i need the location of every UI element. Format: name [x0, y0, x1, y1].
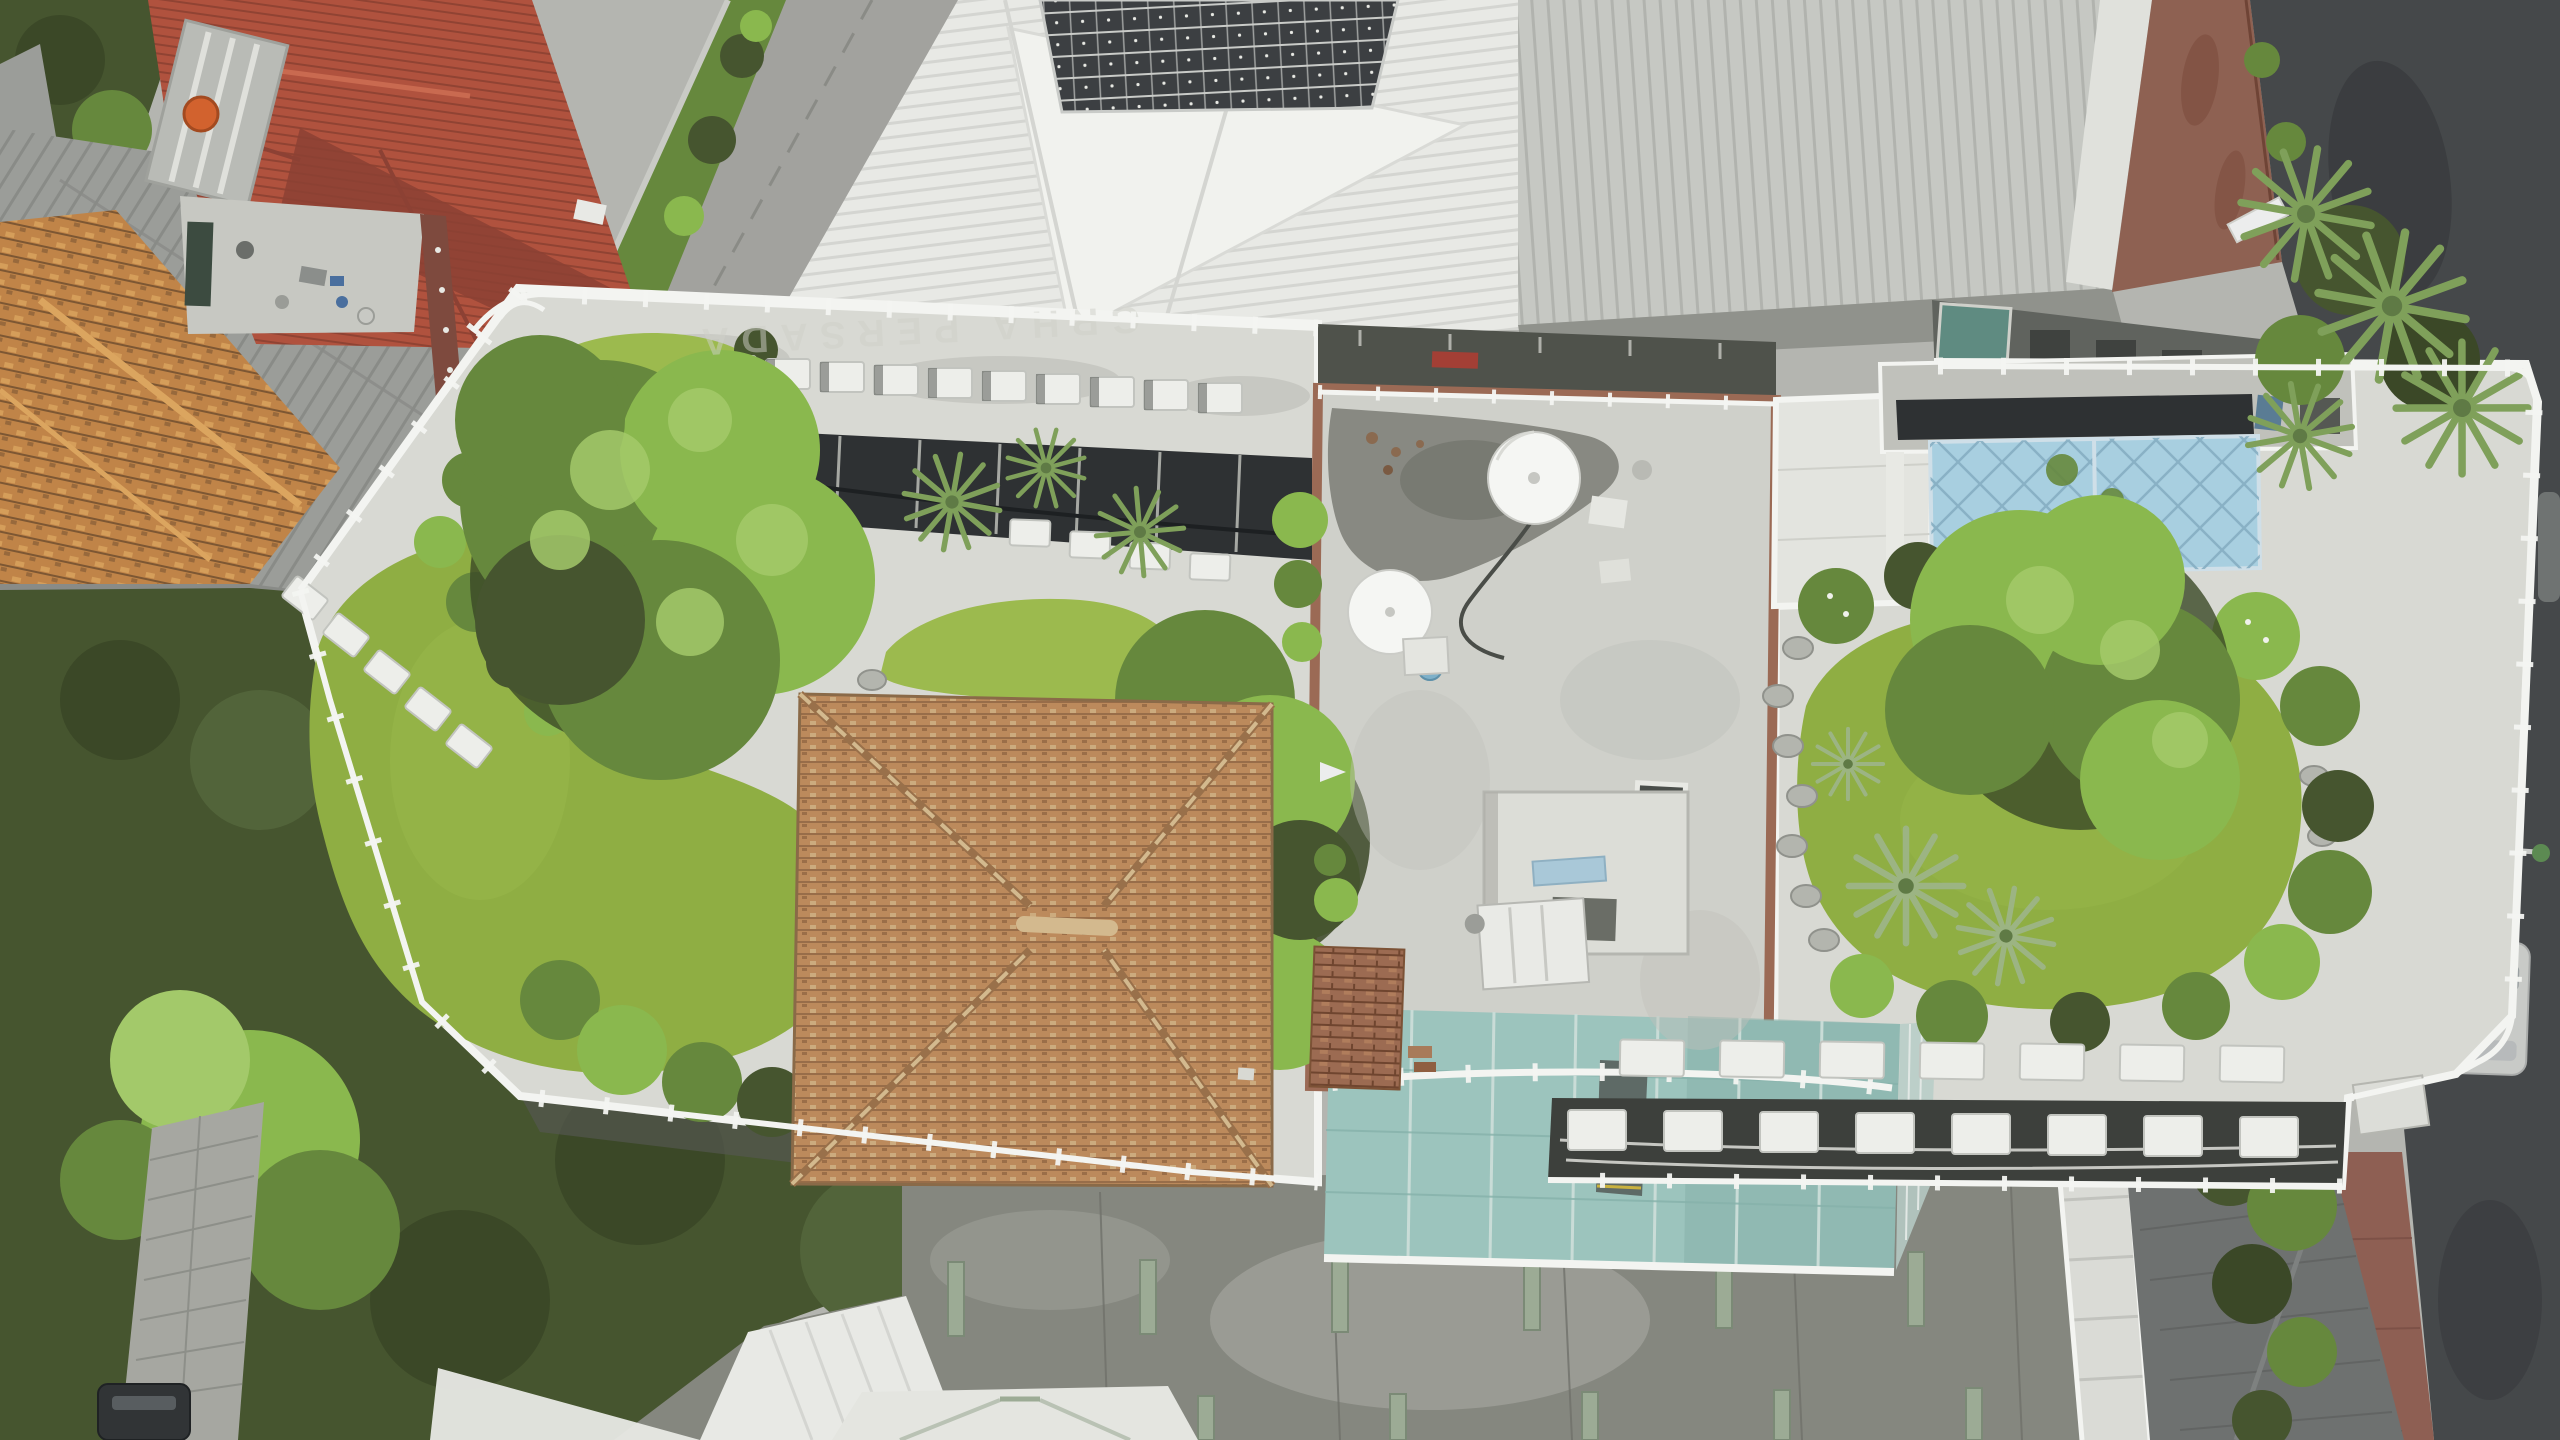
aerial-photo-stage: GRHA PERSADA — [0, 0, 2560, 1440]
solar-panel-array — [1040, 0, 1398, 112]
rust-walkway — [2066, 0, 2282, 292]
satellite-dish-large — [1488, 432, 1580, 524]
parked-car-partial — [2538, 492, 2560, 602]
aerial-photo: GRHA PERSADA — [0, 0, 2560, 1440]
warehouse-roof — [1518, 0, 2152, 362]
blue-strip-item — [1533, 857, 1606, 886]
orange-water-tank — [184, 97, 218, 131]
red-vehicle-glimpse — [1432, 351, 1479, 369]
parked-dark-car — [98, 1384, 190, 1440]
white-crate — [1403, 637, 1449, 675]
roof-vent — [1238, 1067, 1255, 1080]
lamp-head — [2532, 844, 2550, 862]
terracotta-hip-roof — [792, 694, 1272, 1186]
small-white-hip-roof — [832, 1386, 1198, 1440]
green-tank — [185, 222, 214, 307]
